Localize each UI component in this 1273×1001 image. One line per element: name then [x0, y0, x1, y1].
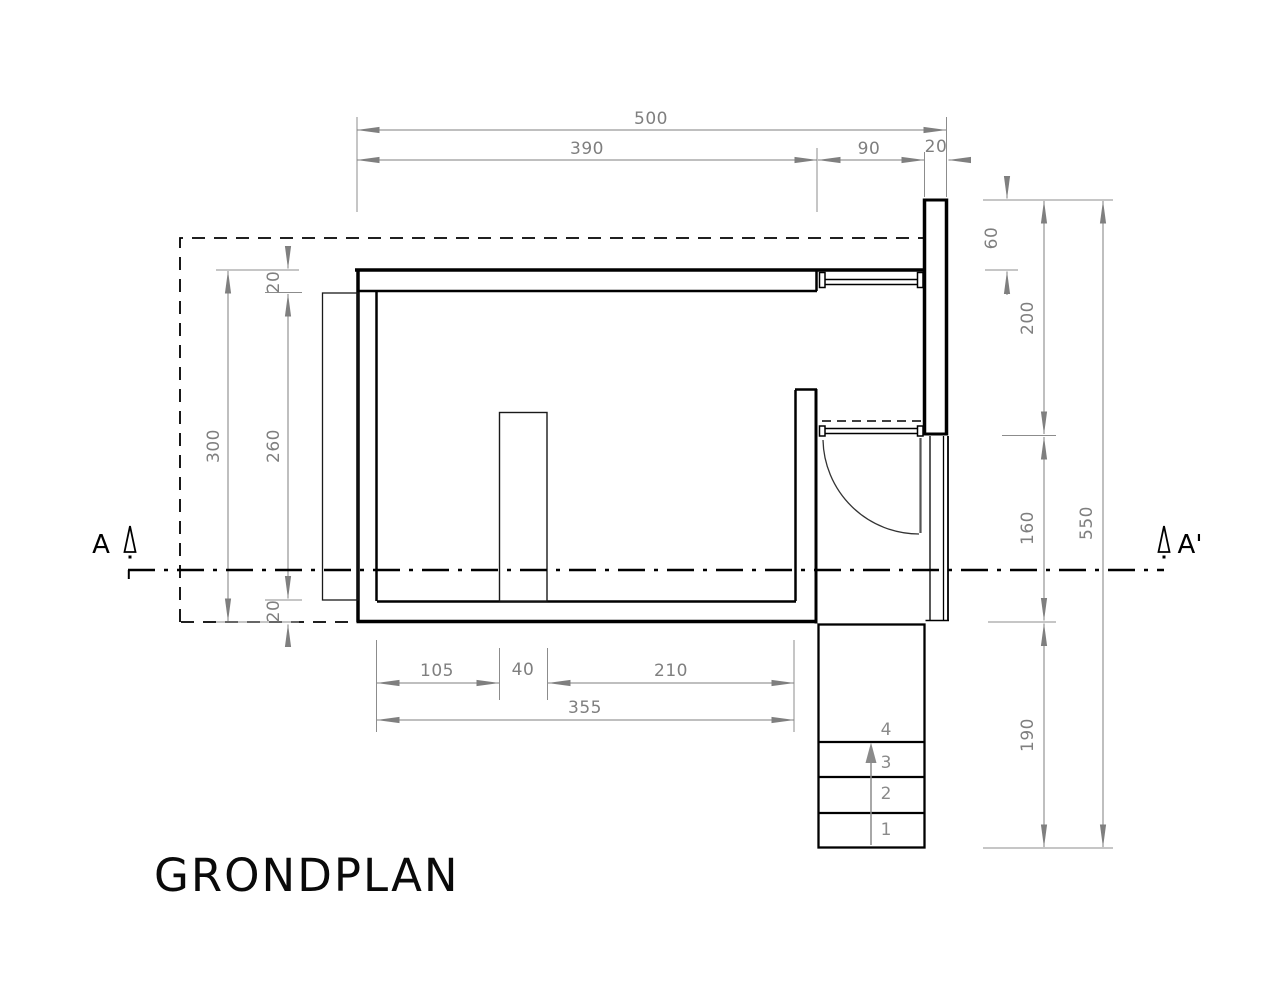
dimension-labels: 500 390 90 20 105 40 210 355 20 300 260 … — [204, 109, 1097, 752]
dim-label-40: 40 — [512, 660, 535, 680]
stair-tread-number: 3 — [881, 753, 892, 773]
drawing-title: GRONDPLAN — [154, 849, 460, 902]
extension-lines — [216, 117, 1113, 848]
door-post-left — [820, 426, 826, 436]
dim-label-550: 550 — [1077, 506, 1097, 540]
dim-label-210: 210 — [654, 661, 688, 681]
section-label-a-prime: A' — [1178, 530, 1203, 560]
top-window-post-right — [918, 273, 924, 288]
stair-tread-number: 2 — [881, 784, 892, 804]
section-label-a: A — [92, 530, 110, 560]
door-post-right — [918, 426, 924, 436]
walls — [355, 199, 948, 624]
section-marker-a-prime-icon — [1159, 526, 1170, 552]
interior-partition — [500, 413, 548, 602]
section-marker-a-icon — [125, 526, 136, 552]
stair-tread-number: 4 — [881, 720, 892, 740]
entry-door — [820, 421, 924, 534]
right-window — [926, 436, 950, 621]
door-swing-arc — [823, 440, 919, 534]
dim-label-390: 390 — [570, 139, 604, 159]
section-marker-a-dot — [129, 556, 132, 559]
floor-plan-sheet: 500 390 90 20 105 40 210 355 20 300 260 … — [0, 0, 1273, 1001]
dim-label-105: 105 — [420, 661, 454, 681]
dim-label-left-20-top: 20 — [264, 271, 284, 294]
stairs: 4 3 2 1 — [819, 625, 925, 848]
top-window-post-left — [820, 273, 826, 288]
floor-plan-drawing: 500 390 90 20 105 40 210 355 20 300 260 … — [0, 0, 1273, 1001]
dim-label-200: 200 — [1018, 301, 1038, 335]
left-annex-outline — [323, 293, 359, 600]
dim-label-left-20-bottom: 20 — [264, 600, 284, 623]
dim-label-190: 190 — [1018, 718, 1038, 752]
dim-label-60: 60 — [982, 227, 1002, 250]
dim-label-160: 160 — [1018, 511, 1038, 545]
stair-tread-number: 1 — [881, 820, 892, 840]
dim-label-top-20: 20 — [925, 137, 948, 157]
roof-outline-top-left — [180, 238, 925, 622]
dim-label-300: 300 — [204, 429, 224, 463]
dim-label-90: 90 — [858, 139, 881, 159]
dim-label-260: 260 — [264, 429, 284, 463]
section-marker-a-prime-dot — [1163, 556, 1166, 559]
dim-label-500: 500 — [634, 109, 668, 129]
top-window — [820, 273, 924, 288]
roof-outline — [180, 238, 925, 622]
dim-label-355: 355 — [568, 698, 602, 718]
